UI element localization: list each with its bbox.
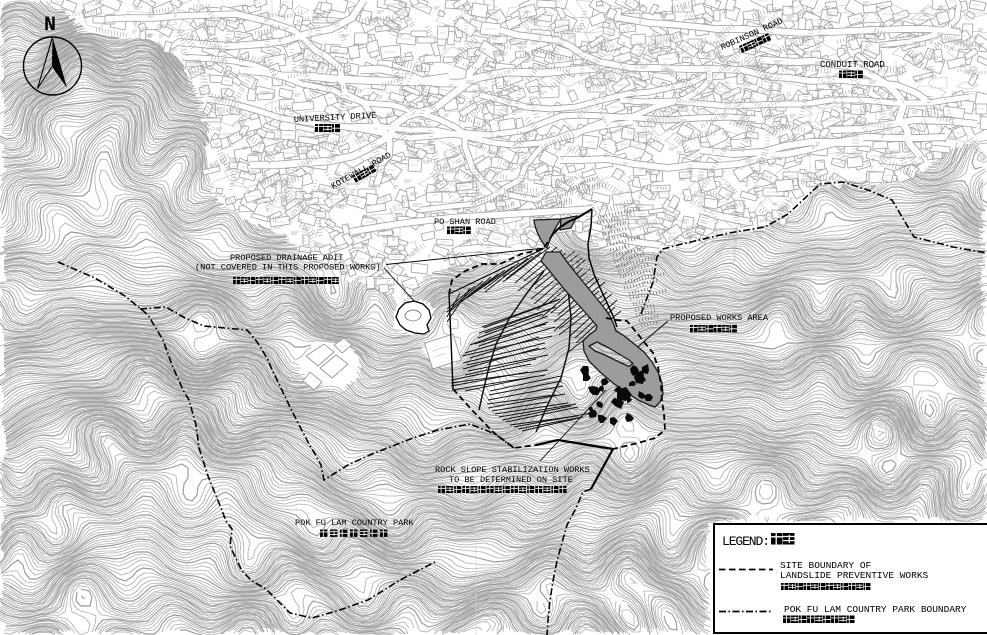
svg-text:(NOT COVERED IN THIS PROPOSED: (NOT COVERED IN THIS PROPOSED WORKS) [195,263,381,273]
svg-text:N: N [44,14,56,37]
svg-text:PO SHAN ROAD: PO SHAN ROAD [434,217,496,227]
svg-text:POK FU LAM COUNTRY PARK BOUNDA: POK FU LAM COUNTRY PARK BOUNDARY [784,604,967,615]
svg-text:LANDSLIDE PREVENTIVE WORKS: LANDSLIDE PREVENTIVE WORKS [780,570,929,581]
svg-text:POK FU LAM COUNTRY PARK: POK FU LAM COUNTRY PARK [295,518,414,528]
svg-text:PROPOSED WORKS AREA: PROPOSED WORKS AREA [670,313,769,323]
svg-text:CONDUIT ROAD: CONDUIT ROAD [820,60,885,70]
svg-text:LEGEND:: LEGEND: [722,534,769,549]
svg-text:TO BE DETERMINED ON SITE: TO BE DETERMINED ON SITE [449,475,573,485]
svg-text:ROCK SLOPE STABILIZATION WORKS: ROCK SLOPE STABILIZATION WORKS [435,465,590,475]
svg-text:PROPOSED DRAINAGE ADIT: PROPOSED DRAINAGE ADIT [230,253,343,263]
